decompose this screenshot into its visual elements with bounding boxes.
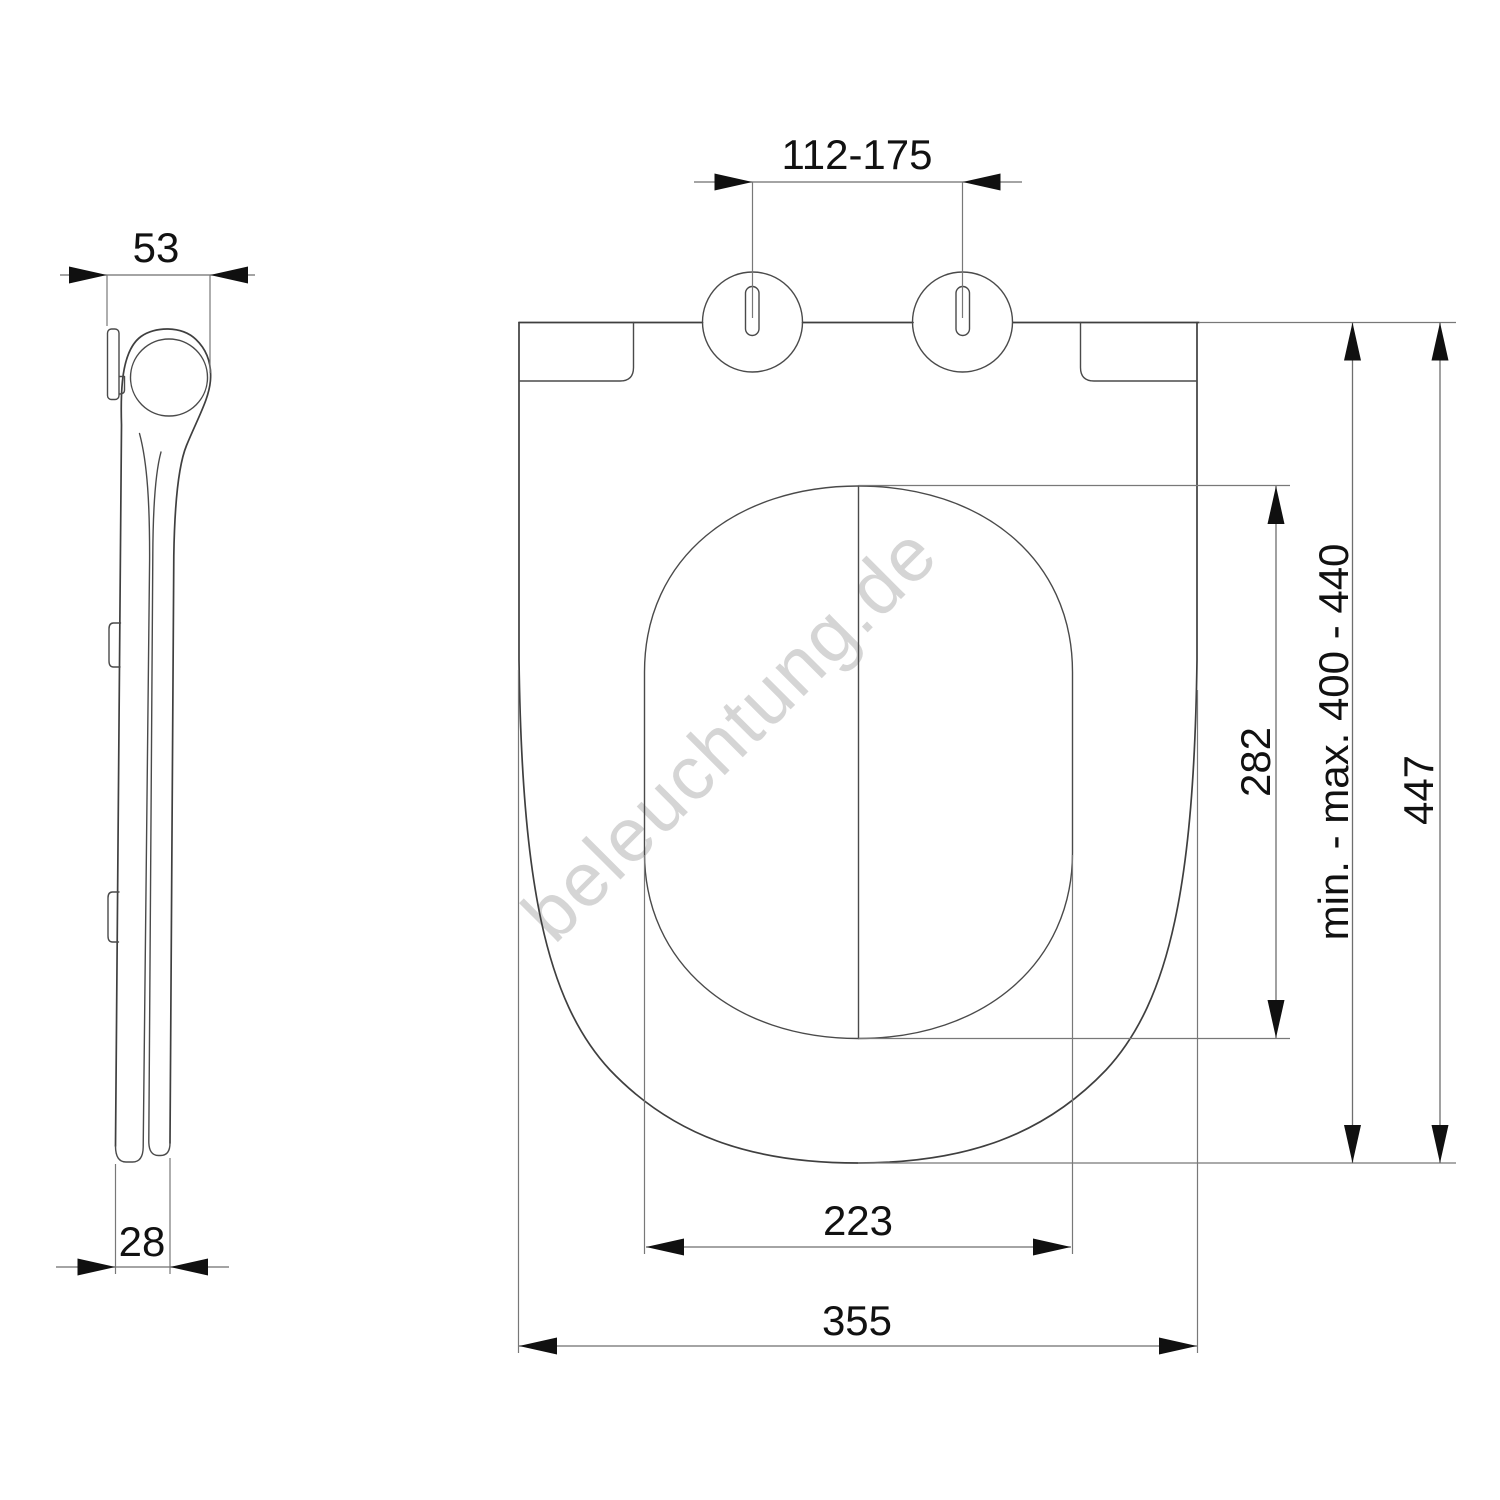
dimension-hinge-spacing: 112-175: [694, 131, 1022, 318]
arrowhead-bottom: [1344, 1125, 1361, 1163]
side-view: 53 28: [56, 224, 255, 1276]
watermark-text: beleuchtung.de: [506, 510, 953, 957]
dimension-side-bottom-thickness: 28: [56, 1158, 229, 1276]
dimension-label-112-175: 112-175: [781, 131, 932, 178]
arrowhead-left: [519, 1338, 557, 1355]
dimension-label-223: 223: [823, 1197, 893, 1244]
side-hinge-circle: [131, 339, 208, 416]
dimension-outer-length: 447: [1395, 323, 1449, 1164]
arrowhead-top: [1268, 486, 1285, 524]
side-profile-lid-strip: [149, 452, 170, 1156]
corner-notch-right: [1081, 323, 1198, 382]
arrowhead-left: [69, 267, 107, 284]
toilet-seat-dimension-drawing: beleuchtung.de 53: [0, 0, 1500, 1500]
dimension-label-28: 28: [119, 1218, 166, 1265]
dimension-mount-range: min. - max. 400 - 440: [858, 323, 1456, 1164]
arrowhead-bottom: [1432, 1125, 1449, 1163]
side-mount-plate: [108, 329, 120, 400]
dimension-label-355: 355: [822, 1297, 892, 1344]
dimension-side-top-thickness: 53: [60, 224, 255, 373]
technical-drawing-page: beleuchtung.de 53: [0, 0, 1500, 1500]
arrowhead-top: [1344, 323, 1361, 361]
arrowhead-right: [170, 1259, 208, 1276]
arrowhead-left: [78, 1259, 116, 1276]
arrowhead-left: [715, 174, 753, 191]
dimension-label-447: 447: [1395, 755, 1442, 825]
arrowhead-right: [1033, 1239, 1071, 1256]
arrowhead-right: [1159, 1338, 1197, 1355]
arrowhead-right: [210, 267, 248, 284]
side-profile-outer-contour: [116, 329, 211, 1146]
dimension-label-min-max-400-440: min. - max. 400 - 440: [1310, 544, 1357, 941]
top-view: [519, 272, 1199, 1163]
arrowhead-bottom: [1268, 1000, 1285, 1038]
corner-notch-left: [519, 323, 634, 382]
arrowhead-left: [646, 1239, 684, 1256]
arrowhead-top: [1432, 323, 1449, 361]
arrowhead-right: [963, 174, 1001, 191]
dimension-label-282: 282: [1232, 727, 1279, 797]
dimension-label-53: 53: [133, 224, 180, 271]
